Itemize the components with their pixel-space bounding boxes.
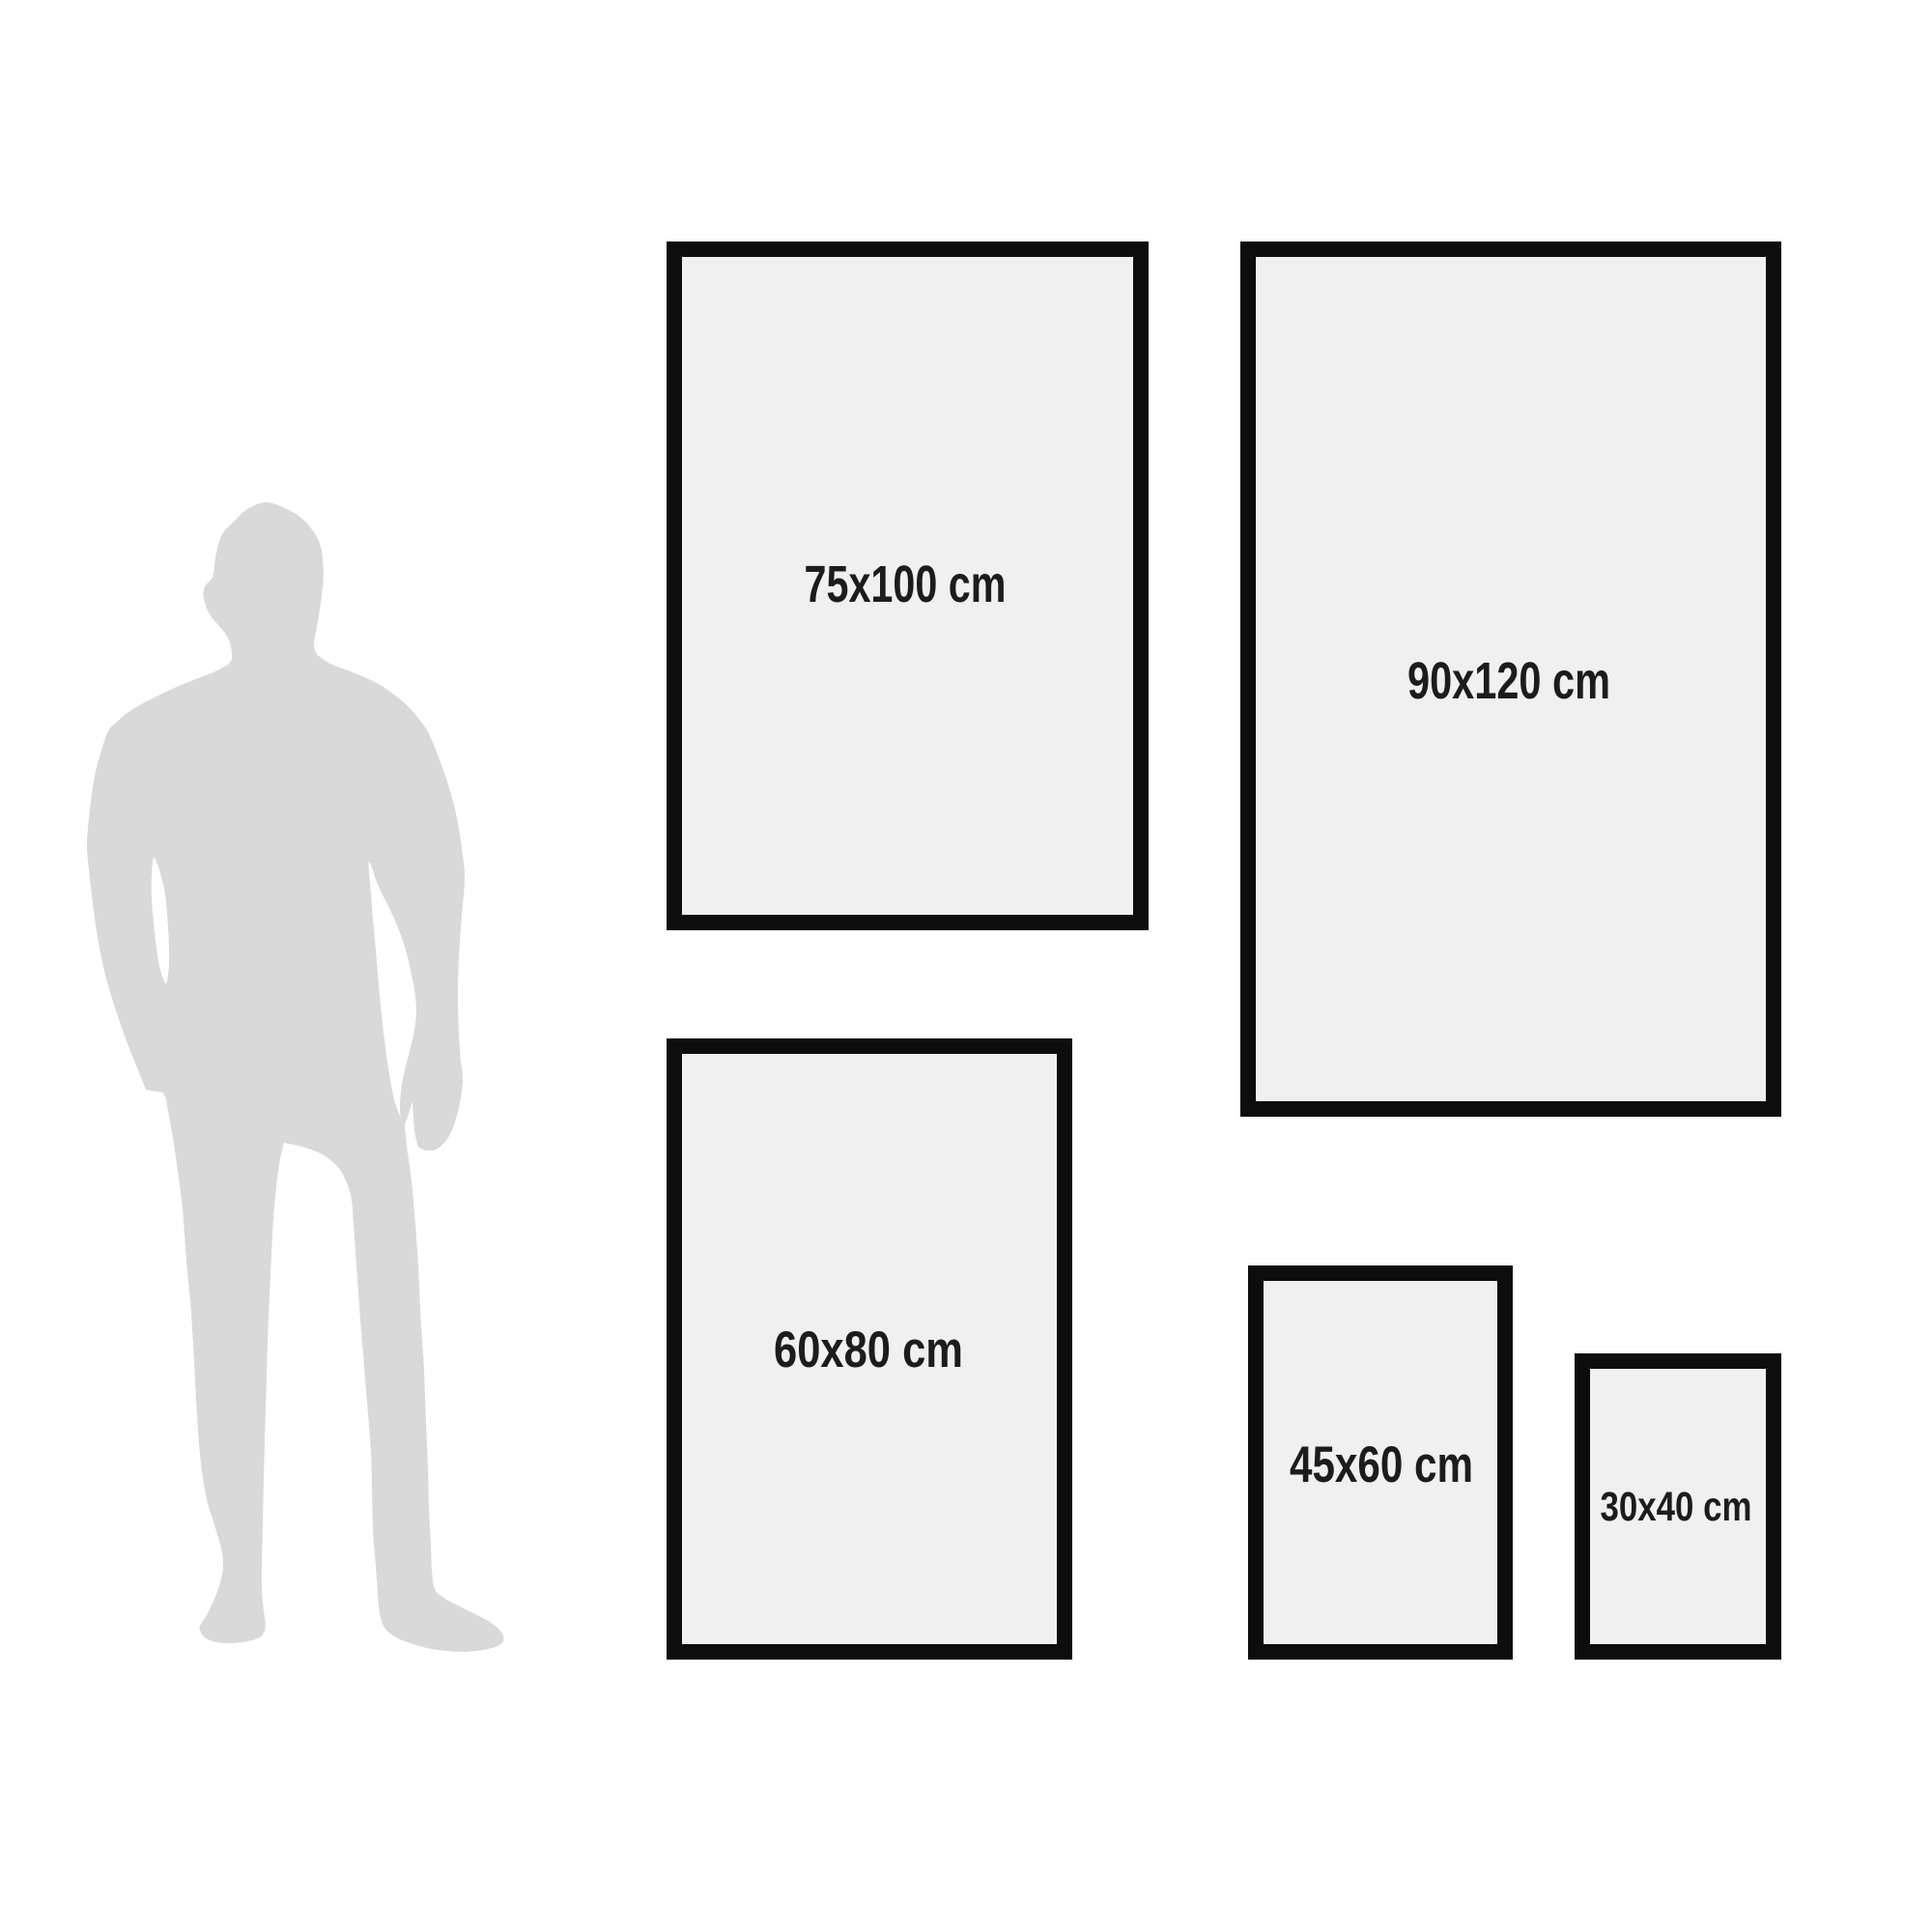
svg-text:30x40 cm: 30x40 cm — [1601, 1484, 1752, 1530]
svg-text:60x80 cm: 60x80 cm — [774, 1321, 963, 1378]
svg-text:45x60 cm: 45x60 cm — [1290, 1436, 1473, 1493]
svg-text:90x120 cm: 90x120 cm — [1407, 652, 1610, 710]
svg-text:75x100 cm: 75x100 cm — [805, 555, 1007, 613]
